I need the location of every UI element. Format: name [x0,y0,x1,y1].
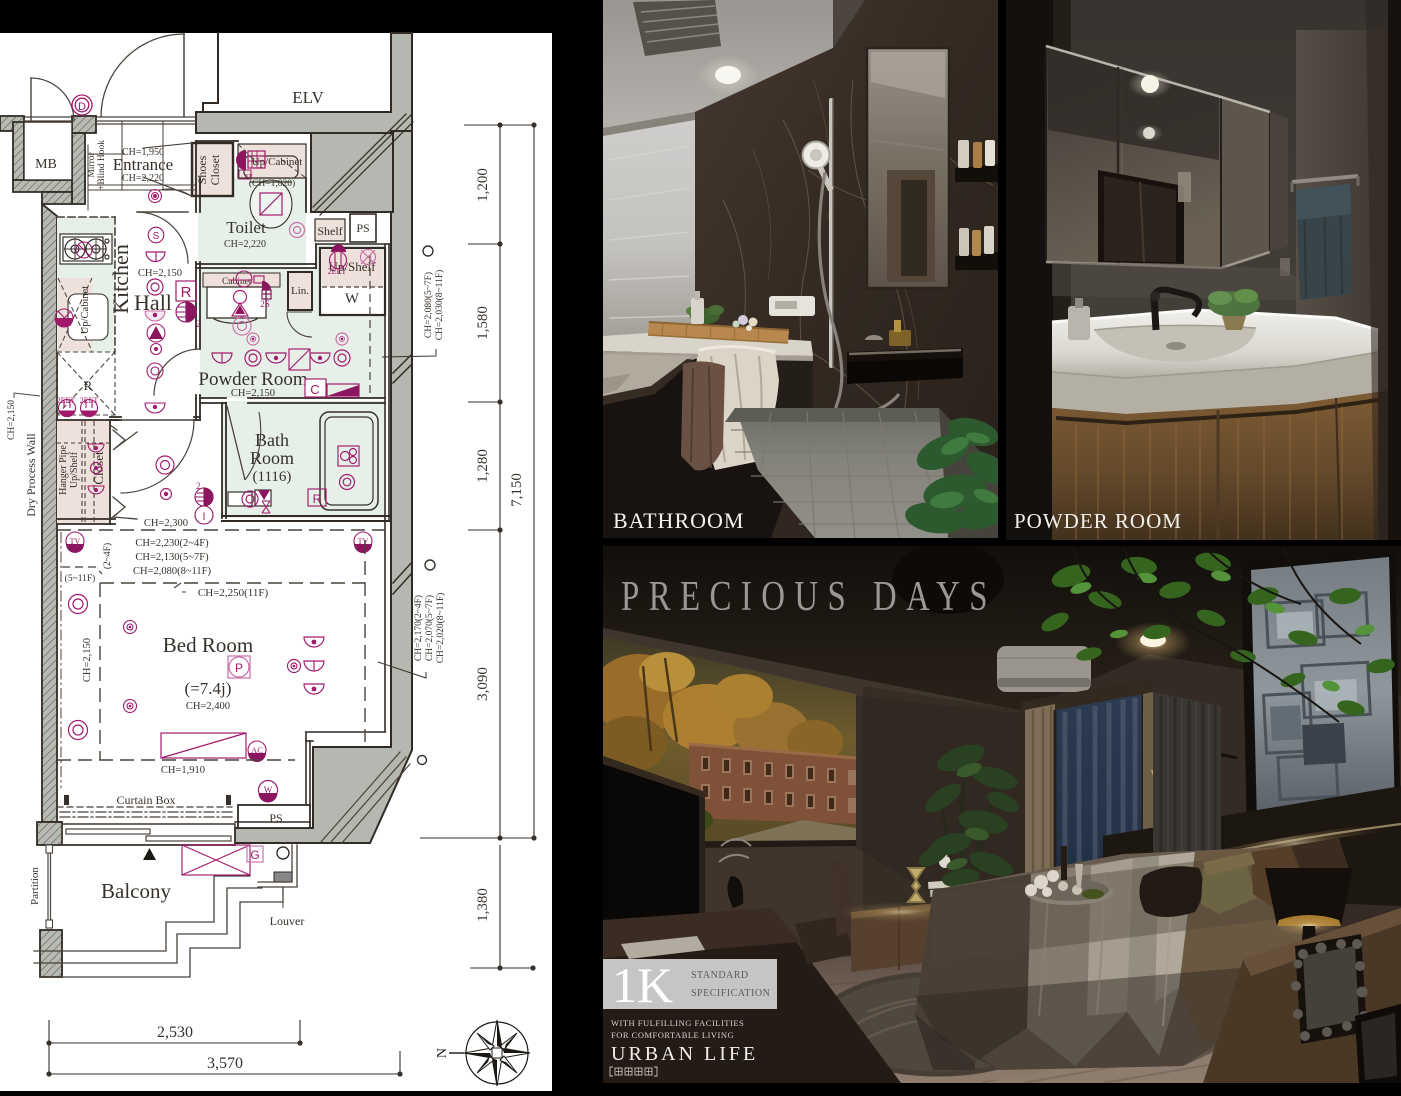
svg-text:W: W [264,785,273,795]
svg-text:CH=2,150: CH=2,150 [82,638,93,682]
svg-text:Up/Shelf: Up/Shelf [69,451,80,488]
svg-text:Balcony: Balcony [101,879,171,903]
svg-text:Toilet: Toilet [226,218,266,237]
svg-text:CH=2,220: CH=2,220 [122,173,164,184]
svg-text:URBAN LIFE: URBAN LIFE [611,1043,758,1065]
svg-text:2,530: 2,530 [157,1024,193,1041]
svg-text:1,200: 1,200 [475,168,491,202]
svg-text:Hanger Pipe: Hanger Pipe [58,445,69,495]
svg-text:MB: MB [35,157,57,172]
svg-text:W: W [345,291,360,307]
svg-text:(1116): (1116) [253,469,292,485]
svg-text:TV: TV [358,537,369,546]
svg-text:Dry Process Wall: Dry Process Wall [24,433,38,517]
svg-text:+Blind Hook: +Blind Hook [97,140,107,190]
svg-text:Partition: Partition [29,867,41,905]
svg-text:POWDER ROOM: POWDER ROOM [1014,509,1182,533]
svg-text:3,090: 3,090 [475,667,491,701]
svg-text:CH=2,020(8~11F): CH=2,020(8~11F) [435,593,446,664]
svg-text:CH=2,150: CH=2,150 [7,400,17,440]
svg-text:STANDARD: STANDARD [691,970,749,981]
svg-text:Lin.: Lin. [291,285,309,297]
svg-text:Closet: Closet [208,154,222,185]
svg-text:SPECIFICATION: SPECIFICATION [691,988,770,999]
svg-text:CH=2,130(5~7F): CH=2,130(5~7F) [135,552,209,563]
svg-text:2S: 2S [260,299,270,309]
svg-text:1K: 1K [612,957,673,1013]
svg-text:CH=2,030(8~11F): CH=2,030(8~11F) [434,270,445,341]
svg-text:WITH FULFILLING FACILITIES: WITH FULFILLING FACILITIES [611,1018,744,1028]
svg-text:C: C [310,382,319,397]
svg-text:Powder Room: Powder Room [198,369,307,390]
svg-text:PS: PS [356,221,369,235]
svg-text:R: R [84,378,93,393]
svg-text:R: R [181,284,192,301]
svg-text:CH=2,220: CH=2,220 [224,239,266,250]
svg-text:1,580: 1,580 [475,306,491,340]
svg-text:3,570: 3,570 [207,1055,243,1072]
svg-text:S: S [153,231,160,242]
svg-text:Louver: Louver [270,914,305,928]
svg-text:Curtain Box: Curtain Box [117,793,176,807]
svg-text:7,150: 7,150 [509,473,525,507]
svg-text:1,380: 1,380 [475,888,491,922]
svg-text:CH=2,300: CH=2,300 [144,518,188,529]
svg-text:Up/Cabinet: Up/Cabinet [80,286,91,334]
svg-text:Closet: Closet [91,451,106,485]
svg-text:2: 2 [196,319,201,329]
svg-text:BATHROOM: BATHROOM [613,508,744,533]
svg-text:(=7.4j): (=7.4j) [185,679,232,698]
svg-text:1,280: 1,280 [475,449,491,483]
svg-text:CH=2,070(5~7F): CH=2,070(5~7F) [424,595,435,661]
svg-text:N: N [435,1048,450,1058]
svg-text:CH=2,250(11F): CH=2,250(11F) [198,587,269,599]
svg-text:TV: TV [70,537,81,546]
svg-text:CH=2,150: CH=2,150 [231,388,275,399]
svg-text:Shoes: Shoes [195,155,209,184]
svg-text:CH=2,400: CH=2,400 [186,701,230,712]
svg-text:Entrance: Entrance [113,155,173,174]
svg-text:2EET: 2EET [328,267,347,276]
svg-text:Kitchen: Kitchen [108,244,133,314]
svg-text:FOR COMFORTABLE LIVING: FOR COMFORTABLE LIVING [611,1030,734,1040]
svg-text:CH=1,910: CH=1,910 [161,765,205,776]
svg-text:CH=2,080(5~7F): CH=2,080(5~7F) [423,272,434,338]
svg-text:2EET: 2EET [80,396,99,405]
svg-text:Up/Cabinet: Up/Cabinet [252,156,303,168]
svg-text:Bed Room: Bed Room [163,633,253,657]
svg-text:PRECIOUS DAYS: PRECIOUS DAYS [621,574,997,620]
svg-text:(CH=1,820): (CH=1,820) [249,178,295,189]
svg-text:G: G [250,848,259,862]
svg-text:AC: AC [251,745,263,755]
svg-text:Shelf: Shelf [317,224,342,238]
svg-text:CH=2,150: CH=2,150 [138,268,182,279]
svg-text:CH=2,170(2~4F): CH=2,170(2~4F) [413,595,424,661]
svg-text:I: I [202,511,205,523]
svg-text:P: P [235,661,243,675]
svg-text:R: R [313,492,322,506]
svg-text:CH=2,230(2~4F): CH=2,230(2~4F) [135,538,209,549]
svg-text:(2~4F): (2~4F) [102,543,113,569]
svg-text:ELV: ELV [292,88,324,107]
svg-text:PS: PS [269,811,282,825]
svg-text:CH=2,080(8~11F): CH=2,080(8~11F) [133,566,212,577]
svg-text:D: D [78,101,86,113]
svg-text:Mirror: Mirror [87,152,97,178]
svg-text:(5~11F): (5~11F) [65,573,96,584]
